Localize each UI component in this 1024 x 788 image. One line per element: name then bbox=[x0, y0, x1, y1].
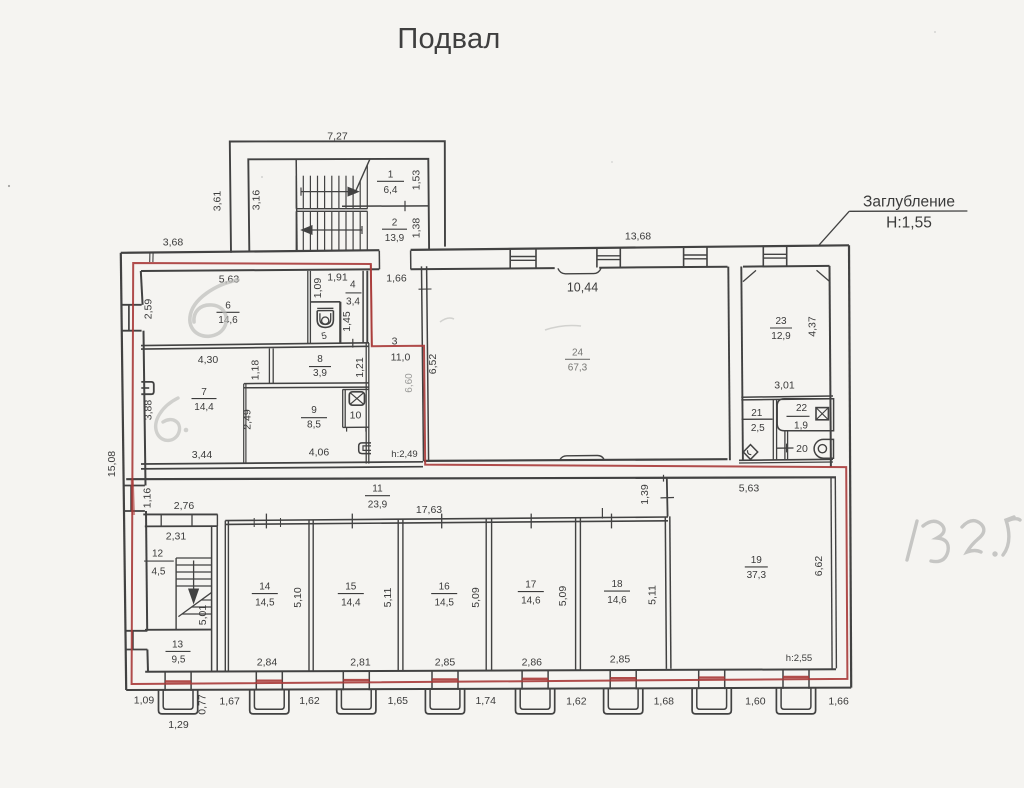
svg-text:14,4: 14,4 bbox=[194, 402, 214, 413]
svg-text:10,44: 10,44 bbox=[567, 281, 598, 295]
svg-text:h:2,55: h:2,55 bbox=[786, 653, 812, 664]
svg-text:3,61: 3,61 bbox=[212, 191, 224, 212]
svg-text:8,5: 8,5 bbox=[307, 420, 321, 431]
svg-text:14: 14 bbox=[259, 582, 271, 593]
svg-text:2,49: 2,49 bbox=[242, 409, 254, 430]
svg-text:2,76: 2,76 bbox=[174, 500, 195, 512]
svg-text:1,09: 1,09 bbox=[312, 278, 324, 299]
svg-text:2,31: 2,31 bbox=[166, 531, 187, 543]
svg-text:1,62: 1,62 bbox=[299, 695, 320, 707]
svg-text:22: 22 bbox=[796, 403, 808, 414]
svg-text:16: 16 bbox=[439, 582, 451, 593]
svg-text:11,0: 11,0 bbox=[391, 352, 411, 364]
svg-text:1,9: 1,9 bbox=[794, 420, 808, 431]
svg-text:4,06: 4,06 bbox=[309, 447, 330, 459]
svg-text:6,52: 6,52 bbox=[427, 354, 439, 375]
svg-text:5,09: 5,09 bbox=[470, 587, 482, 608]
svg-text:1,18: 1,18 bbox=[250, 360, 262, 381]
svg-text:1,91: 1,91 bbox=[327, 272, 348, 284]
svg-text:17: 17 bbox=[525, 580, 537, 591]
svg-text:1,38: 1,38 bbox=[411, 218, 423, 239]
svg-text:h:2,49: h:2,49 bbox=[391, 449, 417, 460]
svg-text:20: 20 bbox=[796, 443, 808, 455]
svg-text:1,29: 1,29 bbox=[168, 719, 189, 731]
svg-text:0,77: 0,77 bbox=[197, 694, 209, 715]
svg-text:8: 8 bbox=[317, 354, 323, 365]
svg-text:1,45: 1,45 bbox=[341, 311, 353, 332]
svg-text:1,67: 1,67 bbox=[219, 696, 240, 708]
svg-text:10: 10 bbox=[350, 410, 362, 422]
svg-text:3,44: 3,44 bbox=[192, 449, 213, 461]
svg-text:23,9: 23,9 bbox=[368, 500, 388, 511]
svg-text:1,53: 1,53 bbox=[411, 170, 423, 191]
svg-text:1,09: 1,09 bbox=[134, 695, 155, 707]
svg-text:1,21: 1,21 bbox=[354, 357, 366, 378]
svg-text:37,3: 37,3 bbox=[747, 570, 767, 581]
svg-text:5,10: 5,10 bbox=[292, 587, 304, 608]
svg-text:14,5: 14,5 bbox=[434, 598, 454, 609]
svg-text:12: 12 bbox=[152, 549, 164, 560]
svg-text:3,16: 3,16 bbox=[251, 190, 263, 211]
svg-text:21: 21 bbox=[751, 408, 763, 419]
svg-text:1,39: 1,39 bbox=[639, 484, 651, 505]
svg-text:2,5: 2,5 bbox=[751, 423, 765, 434]
svg-text:2,84: 2,84 bbox=[257, 657, 278, 669]
svg-text:2,85: 2,85 bbox=[435, 657, 456, 669]
svg-text:14,4: 14,4 bbox=[341, 598, 361, 609]
svg-text:3,4: 3,4 bbox=[346, 297, 360, 308]
svg-text:4,5: 4,5 bbox=[152, 567, 166, 578]
svg-text:4: 4 bbox=[350, 280, 356, 291]
svg-text:23: 23 bbox=[775, 316, 787, 327]
svg-text:3,88: 3,88 bbox=[143, 400, 155, 421]
svg-text:11: 11 bbox=[372, 484, 383, 495]
svg-text:18: 18 bbox=[611, 579, 623, 590]
svg-text:3,01: 3,01 bbox=[774, 380, 795, 392]
svg-text:9,5: 9,5 bbox=[172, 655, 186, 666]
svg-text:14,6: 14,6 bbox=[607, 595, 627, 606]
svg-text:9: 9 bbox=[311, 405, 317, 416]
svg-text:Н:1,55: Н:1,55 bbox=[886, 215, 932, 232]
svg-text:12,9: 12,9 bbox=[771, 331, 791, 342]
svg-text:1,66: 1,66 bbox=[386, 273, 407, 285]
svg-text:Подвал: Подвал bbox=[397, 23, 500, 55]
svg-text:17,63: 17,63 bbox=[416, 504, 442, 516]
svg-text:1,16: 1,16 bbox=[142, 488, 154, 509]
svg-text:1: 1 bbox=[388, 170, 394, 181]
svg-text:13: 13 bbox=[172, 640, 184, 651]
svg-text:13,9: 13,9 bbox=[385, 233, 405, 244]
svg-text:5,11: 5,11 bbox=[382, 588, 394, 608]
svg-text:4,30: 4,30 bbox=[198, 354, 219, 366]
svg-text:5,63: 5,63 bbox=[739, 483, 760, 495]
svg-text:7: 7 bbox=[201, 387, 207, 398]
svg-text:6,4: 6,4 bbox=[384, 185, 398, 196]
svg-text:14,6: 14,6 bbox=[521, 596, 541, 607]
svg-text:1,60: 1,60 bbox=[745, 696, 766, 708]
svg-text:5,09: 5,09 bbox=[557, 586, 569, 607]
svg-text:1,65: 1,65 bbox=[388, 695, 409, 707]
svg-text:24: 24 bbox=[572, 348, 584, 359]
svg-text:2,86: 2,86 bbox=[522, 657, 543, 669]
svg-text:6,60: 6,60 bbox=[404, 373, 415, 393]
svg-text:1,74: 1,74 bbox=[475, 695, 496, 707]
svg-text:15,08: 15,08 bbox=[106, 451, 118, 477]
svg-text:2,81: 2,81 bbox=[350, 657, 371, 669]
svg-text:15: 15 bbox=[345, 582, 357, 593]
svg-text:13,68: 13,68 bbox=[625, 231, 651, 243]
svg-text:2,85: 2,85 bbox=[610, 654, 631, 666]
svg-text:6,62: 6,62 bbox=[813, 556, 825, 577]
svg-text:7,27: 7,27 bbox=[327, 131, 348, 143]
svg-text:14,5: 14,5 bbox=[255, 598, 275, 609]
svg-text:5,01: 5,01 bbox=[197, 605, 209, 626]
svg-text:5,11: 5,11 bbox=[647, 585, 659, 605]
svg-text:2,59: 2,59 bbox=[143, 299, 155, 320]
svg-text:1,68: 1,68 bbox=[654, 696, 675, 708]
svg-text:4,37: 4,37 bbox=[807, 316, 819, 337]
svg-text:Заглубление: Заглубление bbox=[863, 194, 955, 211]
svg-text:3,9: 3,9 bbox=[313, 368, 327, 379]
svg-text:1,66: 1,66 bbox=[828, 696, 849, 708]
svg-text:3,68: 3,68 bbox=[163, 237, 184, 249]
svg-text:19: 19 bbox=[751, 555, 763, 566]
svg-text:1,62: 1,62 bbox=[566, 696, 587, 708]
svg-text:2: 2 bbox=[392, 218, 398, 229]
svg-text:6: 6 bbox=[225, 301, 231, 312]
svg-text:14,6: 14,6 bbox=[218, 315, 238, 326]
svg-text:67,3: 67,3 bbox=[568, 363, 588, 374]
